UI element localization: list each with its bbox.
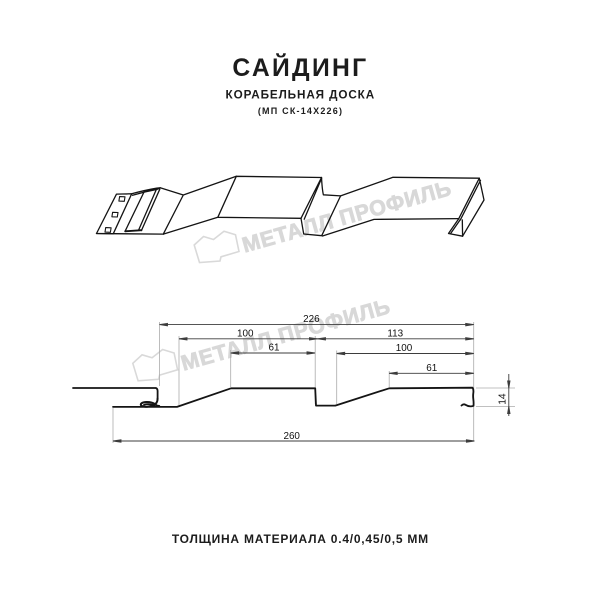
svg-text:100: 100 [396,343,413,354]
svg-text:260: 260 [283,431,300,442]
svg-text:100: 100 [237,328,254,339]
svg-text:226: 226 [303,314,320,325]
svg-text:(МП СК-14Х226): (МП СК-14Х226) [258,106,343,116]
svg-text:КОРАБЕЛЬНАЯ ДОСКА: КОРАБЕЛЬНАЯ ДОСКА [226,89,376,102]
svg-text:ТОЛЩИНА МАТЕРИАЛА 0.4/0,45/0,5: ТОЛЩИНА МАТЕРИАЛА 0.4/0,45/0,5 ММ [172,532,429,546]
svg-text:61: 61 [269,342,280,353]
svg-text:САЙДИНГ: САЙДИНГ [232,54,368,82]
svg-text:61: 61 [426,363,437,374]
svg-text:14: 14 [498,393,509,405]
svg-text:113: 113 [387,328,403,339]
